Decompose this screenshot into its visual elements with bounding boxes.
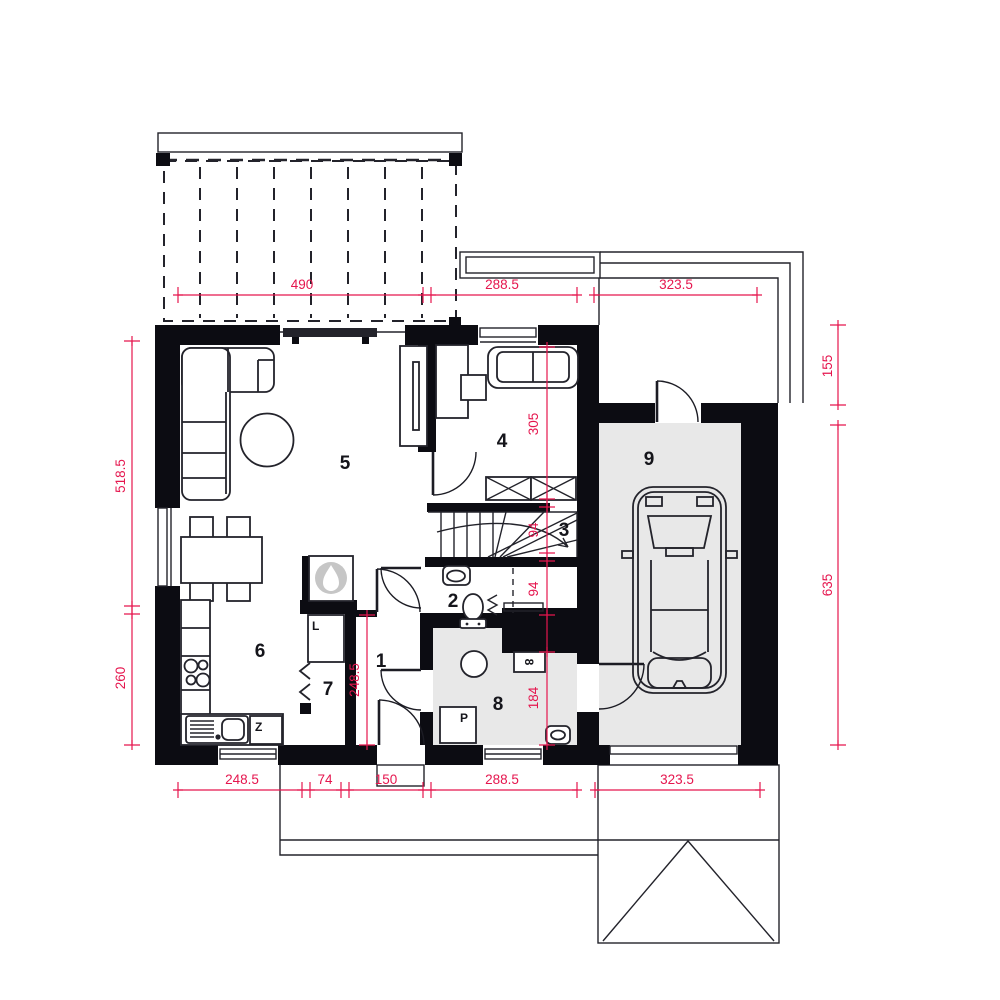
dim-bottom-150: 150	[375, 772, 398, 787]
door-wc	[381, 568, 421, 608]
dim-inner-305: 305	[526, 413, 541, 436]
floorplan-page: Z L	[0, 0, 1000, 1000]
wall-top-b	[405, 325, 478, 345]
door-hall-living	[377, 569, 420, 612]
entry-canopy-outer	[460, 252, 600, 278]
study	[400, 345, 578, 500]
wall-bottom-a	[155, 745, 218, 765]
room-label-9: 9	[644, 449, 655, 470]
door-study	[433, 452, 476, 495]
room-label-8: 8	[493, 694, 504, 715]
utility-sink	[546, 726, 570, 744]
terrace-post	[449, 153, 462, 166]
terrace-post	[156, 153, 170, 166]
roof-overhang-lines	[599, 252, 803, 403]
dim-inner-94b: 94	[526, 581, 541, 597]
dim-top-323-5: 323.5	[659, 277, 693, 292]
sliding-door-panel	[283, 328, 377, 337]
wardrobe-crossed	[486, 477, 576, 500]
wall-left-lower	[155, 586, 180, 765]
dim-inner-94a: 94	[526, 522, 541, 538]
toilet-tank	[460, 619, 486, 628]
pantry-wall-stub	[300, 703, 311, 714]
dining-set	[181, 517, 262, 601]
chair	[190, 517, 213, 539]
dim-bottom-248-5: 248.5	[225, 772, 259, 787]
wall-garage-top-a	[599, 403, 657, 423]
boiler	[461, 651, 487, 677]
wall-left-upper	[155, 325, 180, 508]
dim-top-288-5: 288.5	[485, 277, 519, 292]
wall-bottom-e	[738, 745, 778, 765]
room-label-5: 5	[340, 453, 351, 474]
dining-table	[181, 537, 262, 583]
dim-top-490: 490	[291, 277, 314, 292]
dishwasher-label: Z	[255, 720, 262, 734]
garage-gate	[610, 746, 737, 754]
study-window	[480, 328, 536, 337]
wall-hall-right-upper	[420, 613, 433, 670]
door-rear-entry	[379, 700, 424, 745]
boiler-box-label: 8	[522, 659, 536, 666]
dim-left-518-5: 518.5	[113, 459, 128, 493]
entry-canopy-inner	[466, 257, 594, 273]
kitchen: Z	[181, 600, 283, 745]
wall-top-a	[155, 325, 280, 345]
dim-right-635: 635	[820, 574, 835, 597]
garage-hip-roof	[598, 840, 779, 941]
fireplace	[309, 556, 353, 601]
wall-hall-stub	[355, 610, 377, 617]
toilet-bowl	[463, 594, 483, 620]
slider-post	[362, 337, 369, 344]
terrace-pergola-edge	[158, 133, 462, 152]
chair	[227, 517, 250, 539]
wall-hall-right-lower	[420, 712, 433, 745]
radiator-symbol	[488, 595, 497, 615]
room-label-7: 7	[323, 679, 334, 700]
room-label-3: 3	[559, 520, 570, 541]
door-hall-utility	[381, 670, 421, 710]
desk-chair	[461, 375, 486, 400]
coffee-table	[241, 414, 294, 467]
wall-stairs-top	[427, 503, 550, 512]
fridge-label: L	[312, 619, 319, 633]
stairs	[428, 512, 577, 557]
dim-bottom-288-5: 288.5	[485, 772, 519, 787]
dim-bottom-74: 74	[317, 772, 333, 787]
terrace	[156, 153, 462, 329]
washing-machine	[440, 707, 476, 743]
wall-bottom-d	[543, 745, 610, 765]
dining-window	[158, 508, 167, 586]
slider-post	[292, 337, 299, 344]
dim-left-260: 260	[113, 667, 128, 690]
wall-garage-right	[741, 403, 778, 765]
dim-inner-184: 184	[526, 686, 541, 709]
fireplace-hearth	[300, 600, 357, 614]
room-label-4: 4	[497, 431, 508, 452]
dim-right-155: 155	[820, 355, 835, 378]
washing-machine-label: P	[460, 711, 468, 725]
wall-bottom-b	[278, 745, 377, 765]
garage-door-opening-inner	[577, 664, 599, 712]
garage-floor	[599, 423, 741, 745]
wall-bottom-c	[425, 745, 483, 765]
room-label-6: 6	[255, 641, 266, 662]
room-label-2: 2	[448, 591, 459, 612]
hall-utility-opening	[420, 670, 433, 712]
floorplan-canvas: Z L	[0, 0, 1000, 1000]
shelf-break-symbol	[300, 663, 310, 700]
dim-bottom-323-5: 323.5	[660, 772, 694, 787]
dim-inner-248-5: 248.5	[347, 663, 362, 697]
room-label-1: 1	[376, 651, 387, 672]
front-door-opening	[655, 403, 701, 423]
